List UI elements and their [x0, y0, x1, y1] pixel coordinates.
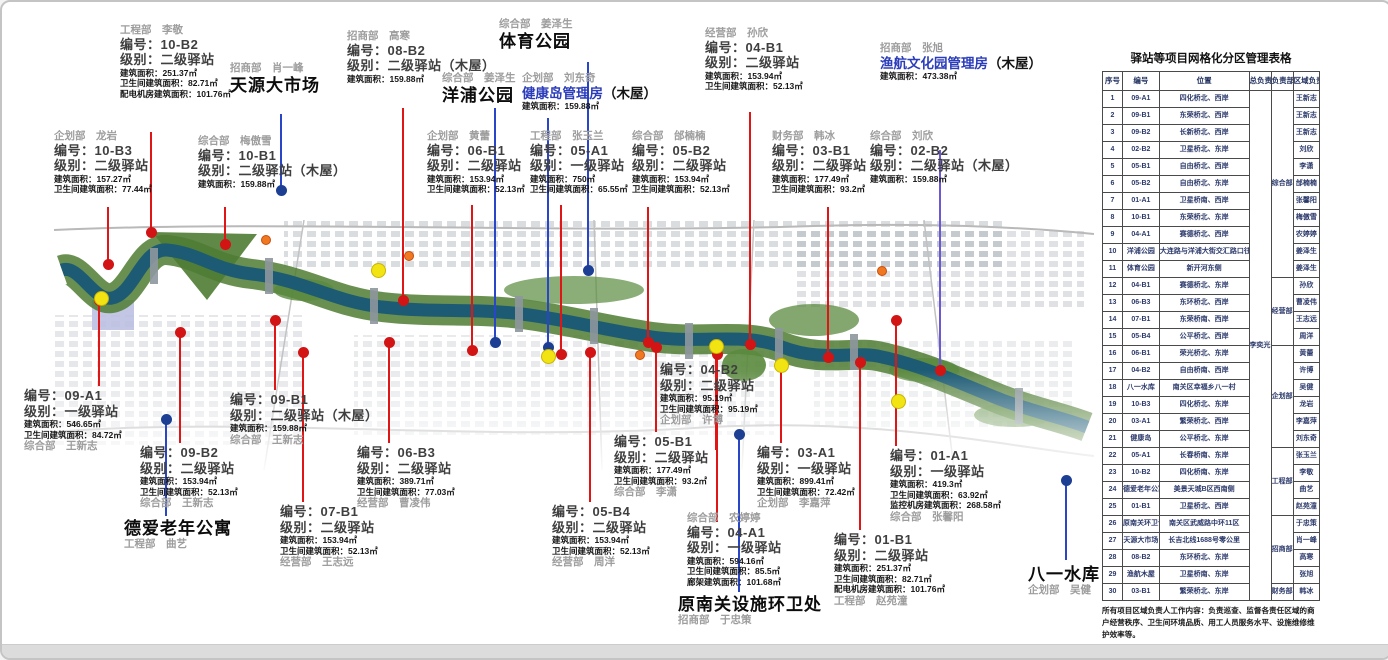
station-code: 编号：10-B1	[198, 149, 347, 164]
cell-no: 4	[1103, 142, 1123, 159]
map-pin-dot	[651, 342, 662, 353]
map-pin-line	[388, 342, 390, 443]
cell-location: 四化桥北、东岸	[1159, 397, 1249, 414]
cell-manager: 王新志	[1293, 125, 1319, 142]
cell-location: 卫星桥南、西岸	[1159, 193, 1249, 210]
cell-dept: 财务部	[1271, 584, 1293, 601]
cell-code: 05-B2	[1122, 176, 1159, 193]
map-pin-dot	[935, 365, 946, 376]
station-owner: 招商部 高寒	[347, 31, 496, 43]
map-pin-dot	[585, 347, 596, 358]
cell-no: 20	[1103, 414, 1123, 431]
station-level: 级别：二级驿站（木屋）	[198, 164, 347, 179]
cell-no: 10	[1103, 244, 1123, 261]
station-owner: 综合部 农婷婷	[687, 513, 782, 525]
map-pin-line	[780, 366, 782, 443]
station-owner: 企划部 黄蕾	[427, 131, 525, 143]
station-code: 编号：05-B2	[632, 144, 730, 159]
corridor-map-svg	[54, 220, 1094, 472]
station-code: 编号：06-B3	[357, 446, 455, 461]
cell-manager: 曲艺	[1293, 482, 1319, 499]
station-code: 编号：05-B4	[552, 505, 650, 520]
cell-no: 22	[1103, 448, 1123, 465]
map-pin-line	[827, 207, 829, 357]
table-row: 3003-B1繁荣桥北、东岸财务部韩冰	[1103, 584, 1320, 601]
place-owner: 工程部 曲艺	[124, 539, 232, 551]
map-pin-line	[895, 320, 897, 446]
cell-no: 25	[1103, 499, 1123, 516]
cell-manager: 张旭	[1293, 567, 1319, 584]
place-name: 体育公园	[499, 32, 573, 51]
table-row: 109-A1四化桥北、西岸李奕光综合部王新志	[1103, 91, 1320, 108]
cell-manager: 肖一峰	[1293, 533, 1319, 550]
place-owner: 企划部 刘东奇	[522, 73, 657, 85]
cell-code: 09-B1	[1122, 108, 1159, 125]
station-metric: 卫生间建筑面积：77.03㎡	[357, 488, 455, 498]
cell-location: 大连路与洋浦大街交汇路口往西约60米	[1159, 244, 1249, 261]
station-code: 编号：05-B1	[614, 435, 709, 450]
cell-location: 南关区武威路中环11区	[1159, 516, 1249, 533]
cell-code: 10-B3	[1122, 397, 1159, 414]
cell-location: 东荣桥北、东岸	[1159, 210, 1249, 227]
table-header-cell: 总负责人	[1249, 72, 1271, 91]
place-owner: 招商部 张旭	[880, 43, 1042, 55]
map-pin-dot	[1061, 475, 1072, 486]
station-metric: 卫生间建筑面积：77.44㎡	[54, 185, 152, 195]
orange-marker-dot	[877, 266, 887, 276]
station-level: 级别：二级驿站	[660, 379, 758, 394]
station-label-04-B2: 编号：04-B2级别：二级驿站建筑面积：95.19㎡卫生间建筑面积：95.19㎡…	[660, 362, 758, 428]
cell-no: 13	[1103, 295, 1123, 312]
station-metric: 建筑面积：153.94㎡	[632, 175, 730, 185]
station-label-10-B2: 工程部 李敬编号：10-B2级别：二级驿站建筑面积：251.37㎡卫生间建筑面积…	[120, 24, 231, 100]
cell-manager: 黄蕾	[1293, 346, 1319, 363]
cell-dept: 招商部	[1271, 516, 1293, 584]
station-label-02-B2: 综合部 刘欣编号：02-B2级别：二级驿站（木屋）建筑面积：159.88㎡	[870, 130, 1019, 185]
station-label-04-B1: 经营部 孙欣编号：04-B1级别：二级驿站建筑面积：153.94㎡卫生间建筑面积…	[705, 27, 803, 93]
station-level: 级别：一级驿站	[24, 405, 122, 420]
place-name: 洋浦公园	[442, 86, 516, 105]
station-level: 级别：二级驿站	[705, 56, 803, 71]
place-name: 渔航文化园管理房（木屋）	[880, 56, 1042, 71]
station-level: 级别：一级驿站	[757, 462, 855, 477]
place-metric: 建筑面积：159.88㎡	[522, 102, 657, 112]
station-label-07-B1: 编号：07-B1级别：二级驿站建筑面积：153.94㎡卫生间建筑面积：52.13…	[280, 504, 378, 570]
place-name-suffix: （木屋）	[603, 86, 657, 101]
station-metric: 建筑面积：419.3㎡	[890, 480, 1001, 490]
station-code: 编号：04-A1	[687, 526, 782, 541]
station-label-01-A1: 编号：01-A1级别：一级驿站建筑面积：419.3㎡卫生间建筑面积：63.92㎡…	[890, 448, 1001, 524]
station-label-06-B1: 企划部 黄蕾编号：06-B1级别：二级驿站建筑面积：153.94㎡卫生间建筑面积…	[427, 130, 525, 196]
map-pin-dot	[146, 227, 157, 238]
station-metric: 卫生间建筑面积：52.13㎡	[705, 82, 803, 92]
cell-location: 繁荣桥北、东岸	[1159, 584, 1249, 601]
map-pin-dot	[734, 429, 745, 440]
table-row: 1204-B1赛德桥北、东岸经营部孙欣	[1103, 278, 1320, 295]
cell-manager: 赵苑潼	[1293, 499, 1319, 516]
cell-no: 27	[1103, 533, 1123, 550]
cell-location: 长春桥南、东岸	[1159, 448, 1249, 465]
map-pin-dot	[220, 239, 231, 250]
map-pin-line	[560, 205, 562, 354]
station-label-03-A1: 编号：03-A1级别：一级驿站建筑面积：899.41㎡卫生间建筑面积：72.42…	[757, 445, 855, 511]
corridor-map	[54, 220, 1094, 472]
cell-manager: 高寒	[1293, 550, 1319, 567]
cell-no: 2	[1103, 108, 1123, 125]
cell-manager: 王新志	[1293, 91, 1319, 108]
station-level: 级别：一级驿站	[530, 159, 628, 174]
cell-manager: 梅傲雪	[1293, 210, 1319, 227]
cell-code: 德爱老年公寓	[1122, 482, 1159, 499]
station-label-09-B2: 编号：09-B2级别：二级驿站建筑面积：153.94㎡卫生间建筑面积：52.13…	[140, 445, 238, 511]
map-pin-line	[1065, 480, 1067, 560]
station-level: 级别：一级驿站	[890, 465, 1001, 480]
map-pin-dot	[103, 259, 114, 270]
station-metric: 卫生间建筑面积：52.13㎡	[552, 547, 650, 557]
cell-code: 洋浦公园	[1122, 244, 1159, 261]
station-owner: 综合部 梅傲雪	[198, 136, 347, 148]
station-metric: 建筑面积：177.49㎡	[772, 175, 867, 185]
station-metric: 建筑面积：251.37㎡	[834, 564, 945, 574]
station-level: 级别：二级驿站（木屋）	[870, 159, 1019, 174]
station-code: 编号：03-A1	[757, 446, 855, 461]
cell-manager: 李嘉萍	[1293, 414, 1319, 431]
station-code: 编号：09-B2	[140, 446, 238, 461]
cell-code: 04-A1	[1122, 227, 1159, 244]
cell-code: 04-B1	[1122, 278, 1159, 295]
cell-manager: 韩冰	[1293, 584, 1319, 601]
map-pin-line	[274, 320, 276, 390]
station-metric: 监控机房建筑面积：268.58㎡	[890, 501, 1001, 511]
cell-chief: 李奕光	[1249, 91, 1271, 601]
cell-no: 21	[1103, 431, 1123, 448]
station-metric: 建筑面积：95.19㎡	[660, 394, 758, 404]
station-label-05-A1: 工程部 张玉兰编号：05-A1级别：一级驿站建筑面积：750㎡卫生间建筑面积：6…	[530, 130, 628, 196]
cell-location: 自由桥南、西岸	[1159, 363, 1249, 380]
cell-code: 09-A1	[1122, 91, 1159, 108]
map-pin-line	[471, 205, 473, 350]
cell-location: 自由桥北、东岸	[1159, 176, 1249, 193]
station-level: 级别：二级驿站（木屋）	[230, 409, 379, 424]
cell-code: 原南关环卫设施处	[1122, 516, 1159, 533]
station-code: 编号：05-A1	[530, 144, 628, 159]
cell-location: 长新桥北、西岸	[1159, 125, 1249, 142]
cell-manager: 李潇	[1293, 159, 1319, 176]
cell-location: 东荣桥北、西岸	[1159, 108, 1249, 125]
station-owner: 综合部 李潇	[614, 487, 709, 499]
orange-marker-dot	[261, 235, 271, 245]
yellow-marker-dot	[774, 358, 789, 373]
cell-manager: 于忠策	[1293, 516, 1319, 533]
cell-no: 16	[1103, 346, 1123, 363]
map-pin-line	[402, 108, 404, 300]
cell-no: 6	[1103, 176, 1123, 193]
management-table: 序号编号位置总负责人负责部门区域负责人109-A1四化桥北、西岸李奕光综合部王新…	[1102, 71, 1320, 601]
map-pin-line	[107, 207, 109, 264]
station-metric: 卫生间建筑面积：52.13㎡	[140, 488, 238, 498]
place-name: 健康岛管理房（木屋）	[522, 86, 657, 101]
station-metric: 建筑面积：157.27㎡	[54, 175, 152, 185]
station-label-04-A1: 综合部 农婷婷编号：04-A1级别：一级驿站建筑面积：594.16㎡卫生间建筑面…	[687, 512, 782, 588]
table-row: 26原南关环卫设施处南关区武威路中环11区招商部于忠策	[1103, 516, 1320, 533]
cell-manager: 周洋	[1293, 329, 1319, 346]
station-metric: 卫生间建筑面积：93.2㎡	[614, 477, 709, 487]
cell-no: 11	[1103, 261, 1123, 278]
yellow-marker-dot	[541, 349, 556, 364]
place-owner: 企划部 吴健	[1028, 585, 1100, 597]
cell-code: 10-B1	[1122, 210, 1159, 227]
place-name: 八一水库	[1028, 565, 1100, 584]
station-metric: 卫生间建筑面积：52.13㎡	[280, 547, 378, 557]
cell-location: 新开河东侧	[1159, 261, 1249, 278]
station-label-05-B1: 编号：05-B1级别：二级驿站建筑面积：177.49㎡卫生间建筑面积：93.2㎡…	[614, 434, 709, 500]
map-pin-dot	[490, 337, 501, 348]
station-metric: 卫生间建筑面积：93.2㎡	[772, 185, 867, 195]
cell-no: 14	[1103, 312, 1123, 329]
orange-marker-dot	[635, 350, 645, 360]
cell-manager: 姜泽生	[1293, 261, 1319, 278]
station-code: 编号：04-B1	[705, 41, 803, 56]
cell-code: 体育公园	[1122, 261, 1159, 278]
table-footnote: 所有项目区域负责人工作内容：负责巡查、监督各责任区域的商户经营秩序、卫生间环境品…	[1102, 605, 1320, 640]
station-code: 编号：06-B1	[427, 144, 525, 159]
cell-no: 3	[1103, 125, 1123, 142]
station-owner: 综合部 邰楠楠	[632, 131, 730, 143]
table-title: 驿站等项目网格化分区管理表格	[1102, 50, 1320, 66]
station-metric: 建筑面积：153.94㎡	[427, 175, 525, 185]
station-metric: 建筑面积：159.88㎡	[870, 175, 1019, 185]
cell-no: 8	[1103, 210, 1123, 227]
cell-no: 23	[1103, 465, 1123, 482]
map-pin-dot	[556, 349, 567, 360]
station-owner: 综合部 王新志	[24, 441, 122, 453]
station-label-03-B1: 财务部 韩冰编号：03-B1级别：二级驿站建筑面积：177.49㎡卫生间建筑面积…	[772, 130, 867, 196]
station-metric: 配电机房建筑面积：101.76㎡	[120, 90, 231, 100]
management-table-panel: 驿站等项目网格化分区管理表格 序号编号位置总负责人负责部门区域负责人109-A1…	[1102, 50, 1320, 640]
station-code: 编号：01-B1	[834, 533, 945, 548]
cell-location: 南关区幸福乡八一村	[1159, 380, 1249, 397]
station-label-09-A1: 编号：09-A1级别：一级驿站建筑面积：546.65㎡卫生间建筑面积：84.72…	[24, 388, 122, 454]
place-owner: 综合部 姜泽生	[442, 73, 516, 85]
cell-code: 03-A1	[1122, 414, 1159, 431]
cell-no: 7	[1103, 193, 1123, 210]
cell-manager: 姜泽生	[1293, 244, 1319, 261]
cell-no: 24	[1103, 482, 1123, 499]
cell-no: 5	[1103, 159, 1123, 176]
station-metric: 建筑面积：159.88㎡	[198, 180, 347, 190]
place-label: 综合部 姜泽生洋浦公园	[442, 72, 516, 106]
table-header-cell: 负责部门	[1271, 72, 1293, 91]
station-code: 编号：04-B2	[660, 363, 758, 378]
station-metric: 建筑面积：153.94㎡	[280, 536, 378, 546]
cell-manager: 邰楠楠	[1293, 176, 1319, 193]
cell-no: 18	[1103, 380, 1123, 397]
cell-location: 长吉北线1688号零公里	[1159, 533, 1249, 550]
cell-manager: 刘欣	[1293, 142, 1319, 159]
map-pin-line	[647, 207, 649, 342]
yellow-marker-dot	[709, 339, 724, 354]
map-pin-dot	[823, 352, 834, 363]
station-label-05-B4: 编号：05-B4级别：二级驿站建筑面积：153.94㎡卫生间建筑面积：52.13…	[552, 504, 650, 570]
station-metric: 配电机房建筑面积：101.76㎡	[834, 585, 945, 595]
station-level: 级别：二级驿站	[140, 462, 238, 477]
place-label: 综合部 姜泽生体育公园	[499, 18, 573, 52]
table-row: 1606-B1荣光桥北、东岸企划部黄蕾	[1103, 346, 1320, 363]
cell-manager: 龙岩	[1293, 397, 1319, 414]
cell-code: 03-B1	[1122, 584, 1159, 601]
station-level: 级别：一级驿站	[687, 541, 782, 556]
cell-location: 东荣桥南、西岸	[1159, 312, 1249, 329]
table-header-cell: 序号	[1103, 72, 1123, 91]
map-pin-line	[589, 352, 591, 502]
station-level: 级别：二级驿站	[54, 159, 152, 174]
cell-no: 12	[1103, 278, 1123, 295]
cell-location: 卫星桥南、东岸	[1159, 567, 1249, 584]
station-metric: 卫生间建筑面积：82.71㎡	[834, 575, 945, 585]
station-code: 编号：03-B1	[772, 144, 867, 159]
station-label-10-B1: 综合部 梅傲雪编号：10-B1级别：二级驿站（木屋）建筑面积：159.88㎡	[198, 135, 347, 190]
cell-dept: 经营部	[1271, 278, 1293, 346]
station-metric: 建筑面积：159.88㎡	[230, 424, 379, 434]
table-header-row: 序号编号位置总负责人负责部门区域负责人	[1103, 72, 1320, 91]
cell-code: 天源大市场	[1122, 533, 1159, 550]
station-metric: 卫生间建筑面积：63.92㎡	[890, 491, 1001, 501]
place-name: 原南关设施环卫处	[678, 595, 822, 614]
station-label-10-B3: 企划部 龙岩编号：10-B3级别：二级驿站建筑面积：157.27㎡卫生间建筑面积…	[54, 130, 152, 196]
cell-location: 繁荣桥北、西岸	[1159, 414, 1249, 431]
cell-code: 01-B1	[1122, 499, 1159, 516]
table-header-cell: 编号	[1122, 72, 1159, 91]
station-owner: 工程部 李敬	[120, 25, 231, 37]
station-metric: 建筑面积：177.49㎡	[614, 466, 709, 476]
station-level: 级别：二级驿站	[632, 159, 730, 174]
station-metric: 建筑面积：594.16㎡	[687, 557, 782, 567]
park-blob	[504, 276, 644, 304]
cell-code: 05-B1	[1122, 159, 1159, 176]
station-metric: 廊架建筑面积：101.68㎡	[687, 578, 782, 588]
cell-location: 公平桥北、西岸	[1159, 329, 1249, 346]
cell-no: 9	[1103, 227, 1123, 244]
cell-manager: 曹凌伟	[1293, 295, 1319, 312]
map-pin-dot	[745, 339, 756, 350]
cell-no: 1	[1103, 91, 1123, 108]
place-label: 德爱老年公寓工程部 曲艺	[124, 518, 232, 552]
station-owner: 财务部 韩冰	[772, 131, 867, 143]
station-owner: 工程部 赵苑潼	[834, 596, 945, 608]
cell-location: 美景天城B区西南侧	[1159, 482, 1249, 499]
cell-no: 28	[1103, 550, 1123, 567]
station-code: 编号：10-B3	[54, 144, 152, 159]
place-label: 招商部 张旭渔航文化园管理房（木屋）建筑面积：473.38㎡	[880, 42, 1042, 82]
station-metric: 卫生间建筑面积：82.71㎡	[120, 79, 231, 89]
station-code: 编号：01-A1	[890, 449, 1001, 464]
cell-dept: 综合部	[1271, 91, 1293, 278]
place-label: 八一水库企划部 吴健	[1028, 564, 1100, 598]
station-metric: 建筑面积：153.94㎡	[140, 477, 238, 487]
cell-manager: 张玉兰	[1293, 448, 1319, 465]
map-pin-dot	[855, 357, 866, 368]
station-metric: 建筑面积：750㎡	[530, 175, 628, 185]
station-level: 级别：二级驿站	[552, 521, 650, 536]
map-pin-dot	[161, 414, 172, 425]
cell-no: 15	[1103, 329, 1123, 346]
cell-code: 八一水库	[1122, 380, 1159, 397]
cell-no: 26	[1103, 516, 1123, 533]
station-level: 级别：二级驿站	[357, 462, 455, 477]
table-row: 2205-A1长春桥南、东岸工程部张玉兰	[1103, 448, 1320, 465]
cell-code: 09-B2	[1122, 125, 1159, 142]
map-pin-dot	[384, 337, 395, 348]
cell-location: 东环桥北、东岸	[1159, 550, 1249, 567]
cell-manager: 孙欣	[1293, 278, 1319, 295]
place-label: 原南关设施环卫处招商部 于忠策	[678, 594, 822, 628]
cell-location: 赛德桥北、西岸	[1159, 227, 1249, 244]
station-metric: 建筑面积：153.94㎡	[705, 72, 803, 82]
place-label: 招商部 肖一峰天源大市场	[230, 62, 320, 96]
station-owner: 工程部 张玉兰	[530, 131, 628, 143]
map-pin-line	[749, 112, 751, 344]
cell-location: 四化桥北、西岸	[1159, 91, 1249, 108]
station-label-06-B3: 编号：06-B3级别：二级驿站建筑面积：389.71㎡卫生间建筑面积：77.03…	[357, 445, 455, 511]
yellow-marker-dot	[891, 394, 906, 409]
cell-manager: 李敬	[1293, 465, 1319, 482]
cell-code: 01-A1	[1122, 193, 1159, 210]
cell-no: 19	[1103, 397, 1123, 414]
station-metric: 建筑面积：389.71㎡	[357, 477, 455, 487]
screenshot-root: 工程部 李敬编号：10-B2级别：二级驿站建筑面积：251.37㎡卫生间建筑面积…	[0, 0, 1388, 660]
station-code: 编号：08-B2	[347, 44, 496, 59]
cell-manager: 王新志	[1293, 108, 1319, 125]
place-owner: 招商部 肖一峰	[230, 63, 320, 75]
station-metric: 卫生间建筑面积：72.42㎡	[757, 488, 855, 498]
place-metric: 建筑面积：473.38㎡	[880, 72, 1042, 82]
place-owner: 综合部 姜泽生	[499, 19, 573, 31]
place-name: 德爱老年公寓	[124, 519, 232, 538]
cell-location: 东环桥北、西岸	[1159, 295, 1249, 312]
station-owner: 综合部 刘欣	[870, 131, 1019, 143]
station-metric: 建筑面积：153.94㎡	[552, 536, 650, 546]
cell-code: 08-B2	[1122, 550, 1159, 567]
station-owner: 综合部 张馨阳	[890, 512, 1001, 524]
cell-no: 29	[1103, 567, 1123, 584]
station-code: 编号：02-B2	[870, 144, 1019, 159]
cell-location: 荣光桥北、东岸	[1159, 346, 1249, 363]
cell-code: 10-B2	[1122, 465, 1159, 482]
cell-location: 卫星桥北、东岸	[1159, 142, 1249, 159]
cell-location: 自由桥北、西岸	[1159, 159, 1249, 176]
station-level: 级别：二级驿站	[834, 549, 945, 564]
map-pin-line	[859, 362, 861, 530]
cell-code: 02-B2	[1122, 142, 1159, 159]
cell-location: 赛德桥北、东岸	[1159, 278, 1249, 295]
station-owner: 经营部 周洋	[552, 557, 650, 569]
station-label-05-B2: 综合部 邰楠楠编号：05-B2级别：二级驿站建筑面积：153.94㎡卫生间建筑面…	[632, 130, 730, 196]
station-metric: 建筑面积：899.41㎡	[757, 477, 855, 487]
cell-manager: 农婷婷	[1293, 227, 1319, 244]
cell-manager: 刘东奇	[1293, 431, 1319, 448]
cell-code: 05-A1	[1122, 448, 1159, 465]
station-metric: 卫生间建筑面积：95.19㎡	[660, 405, 758, 415]
map-pin-dot	[398, 295, 409, 306]
station-owner: 企划部 龙岩	[54, 131, 152, 143]
cell-manager: 吴健	[1293, 380, 1319, 397]
station-level: 级别：二级驿站	[614, 451, 709, 466]
cell-location: 卫星桥北、西岸	[1159, 499, 1249, 516]
station-level: 级别：二级驿站	[120, 53, 231, 68]
place-name: 天源大市场	[230, 76, 320, 95]
station-level: 级别：二级驿站	[427, 159, 525, 174]
cell-no: 17	[1103, 363, 1123, 380]
